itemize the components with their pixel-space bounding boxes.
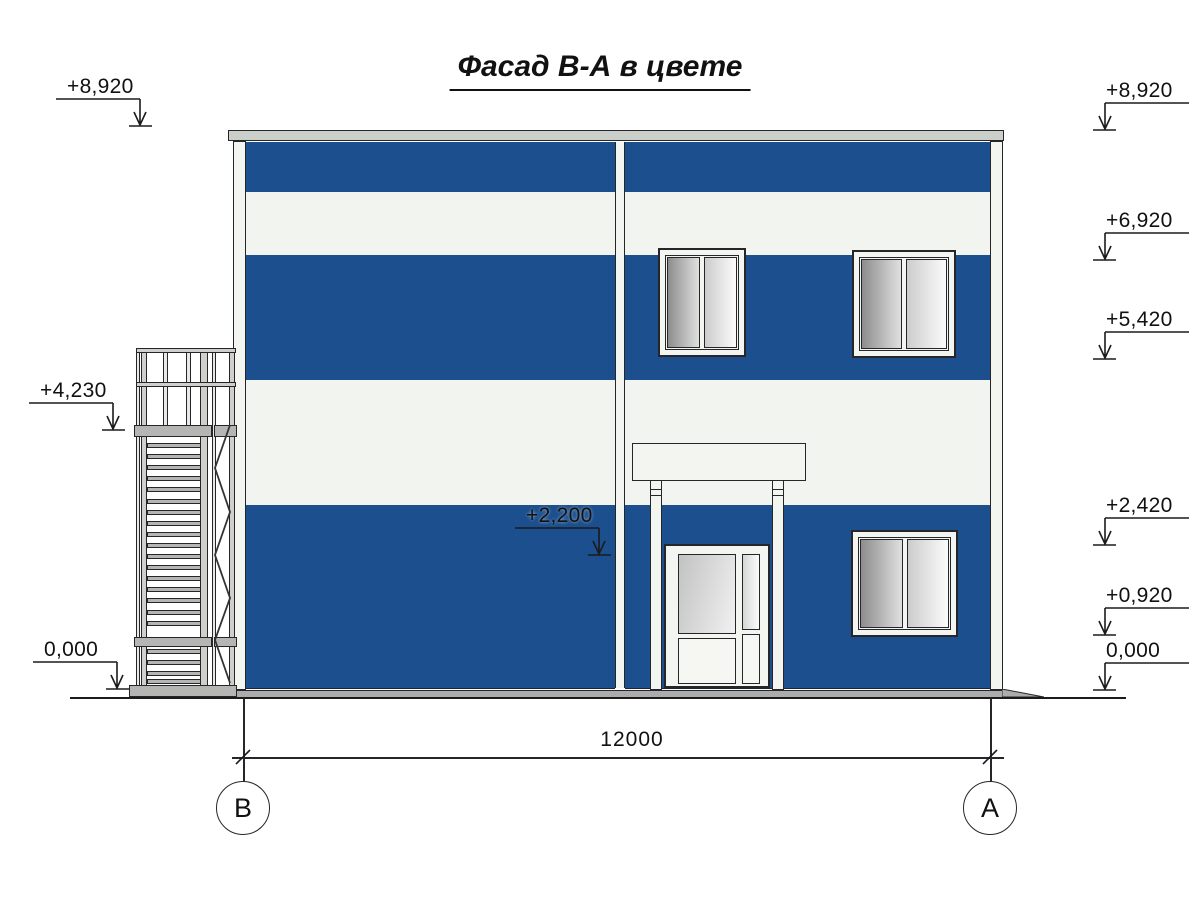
ladder-rung xyxy=(147,465,201,470)
entrance-door xyxy=(664,544,770,688)
ladder-rung xyxy=(147,443,201,448)
facade-stripe xyxy=(246,192,615,256)
dimension-tick-icon xyxy=(235,749,251,765)
elevation-value: 0,000 xyxy=(1090,640,1190,662)
window-upper-right xyxy=(852,250,956,358)
dimension-tick-icon xyxy=(982,749,998,765)
window-pane xyxy=(907,539,950,628)
axis-label: В xyxy=(234,793,252,824)
ladder-rung xyxy=(147,671,201,676)
facade-section-left xyxy=(246,142,615,688)
ladder-rung xyxy=(147,587,201,592)
elevation-arrow-icon xyxy=(1090,331,1190,363)
elevation-value: +2,420 xyxy=(1090,495,1190,517)
elevation-value: +0,920 xyxy=(1090,585,1190,607)
window-pane xyxy=(667,257,700,348)
elevation-arrow-icon xyxy=(1090,517,1190,549)
ladder-rung xyxy=(147,610,201,615)
drawing-title: Фасад В-А в цвете xyxy=(450,50,751,91)
cage-post xyxy=(186,350,191,426)
extension-line-a xyxy=(990,698,992,781)
elevation-value: +8,920 xyxy=(55,76,155,98)
facade-stripe xyxy=(246,318,615,381)
elevation-value: 0,000 xyxy=(32,639,132,661)
dimension-value: 12000 xyxy=(572,728,692,752)
elevation-marker: +2,420 xyxy=(1090,495,1190,549)
elevation-arrow-icon xyxy=(1090,102,1190,134)
elevation-value: +5,420 xyxy=(1090,309,1190,331)
elevation-marker: +2,200 xyxy=(514,505,614,559)
door-lower-panel xyxy=(678,638,736,684)
ladder-rung xyxy=(147,554,201,559)
ladder-platform-lower xyxy=(134,637,212,647)
facade-stripe xyxy=(625,380,990,442)
ladder-rung xyxy=(147,532,201,537)
window-pane xyxy=(860,539,903,628)
elevation-marker: 0,000 xyxy=(1090,640,1190,694)
wall-corner-trim-right xyxy=(990,141,1003,690)
window-lower-right xyxy=(851,530,958,637)
window-pane xyxy=(906,259,947,349)
window-pane xyxy=(861,259,902,349)
elevation-value: +8,920 xyxy=(1090,80,1190,102)
ladder-platform-upper xyxy=(134,425,212,437)
ground-line xyxy=(70,697,1126,699)
facade-stripe xyxy=(246,567,615,629)
elevation-arrow-icon xyxy=(32,661,132,693)
elevation-arrow-icon xyxy=(1090,607,1190,639)
elevation-marker: +4,230 xyxy=(28,380,128,434)
ladder-rung xyxy=(147,649,201,654)
ladder-rung xyxy=(147,621,201,626)
cage-post xyxy=(163,350,168,426)
ladder-rung xyxy=(147,660,201,665)
elevation-marker: +8,920 xyxy=(1090,80,1190,134)
ladder-rung xyxy=(147,679,201,684)
ladder-rung xyxy=(147,565,201,570)
axis-circle-b: В xyxy=(216,781,270,835)
ladder-rung xyxy=(147,521,201,526)
elevation-arrow-icon xyxy=(55,98,155,130)
ladder-rung xyxy=(147,499,201,504)
facade-stripe xyxy=(246,255,615,319)
extension-line-b xyxy=(243,698,245,781)
facade-stripe xyxy=(625,192,990,256)
elevation-arrow-icon xyxy=(1090,232,1190,264)
ladder-rung xyxy=(147,510,201,515)
window-sash xyxy=(859,257,949,351)
ladder-rung xyxy=(147,476,201,481)
elevation-arrow-icon xyxy=(28,402,128,434)
facade-stripe xyxy=(246,142,615,193)
post-joint-mark xyxy=(772,489,784,496)
elevation-value: +2,200 xyxy=(514,505,614,527)
ladder-rung xyxy=(147,543,201,548)
elevation-value: +4,230 xyxy=(28,380,128,402)
facade-stripe xyxy=(625,142,990,193)
facade-stripe xyxy=(246,380,615,442)
facade-drawing-sheet: Фасад В-А в цвете xyxy=(0,0,1200,900)
elevation-value: +6,920 xyxy=(1090,210,1190,232)
facade-stripe xyxy=(246,441,615,506)
axis-circle-a: А xyxy=(963,781,1017,835)
panel-joint xyxy=(615,142,625,688)
elevation-marker: +5,420 xyxy=(1090,309,1190,363)
elevation-marker: +0,920 xyxy=(1090,585,1190,639)
elevation-marker: 0,000 xyxy=(32,639,132,693)
door-sidelight-glass xyxy=(742,554,760,630)
window-sash xyxy=(665,255,739,350)
axis-label: А xyxy=(981,793,999,824)
elevation-marker: +6,920 xyxy=(1090,210,1190,264)
post-joint-mark xyxy=(650,489,662,496)
ladder-left-rail xyxy=(141,348,147,686)
ladder-outer-rail xyxy=(136,348,140,686)
ladder-brace-diagonals xyxy=(210,348,238,688)
canopy-post-left xyxy=(650,480,662,690)
elevation-arrow-icon xyxy=(514,527,614,559)
entrance-canopy xyxy=(632,443,806,481)
dimension-line xyxy=(232,757,1004,759)
window-pane xyxy=(704,257,737,348)
ladder-rung xyxy=(147,454,201,459)
canopy-post-right xyxy=(772,480,784,690)
elevation-marker: +8,920 xyxy=(55,76,155,130)
window-upper-left xyxy=(658,248,746,357)
ladder-rung xyxy=(147,598,201,603)
ladder-rung xyxy=(147,487,201,492)
facade-stripe xyxy=(246,628,615,689)
window-sash xyxy=(858,537,951,630)
elevation-arrow-icon xyxy=(1090,662,1190,694)
ladder-right-rail xyxy=(200,348,208,686)
door-sidelight-panel xyxy=(742,634,760,684)
roof-cap xyxy=(228,130,1004,141)
door-glass xyxy=(678,554,736,634)
ladder-rung xyxy=(147,576,201,581)
